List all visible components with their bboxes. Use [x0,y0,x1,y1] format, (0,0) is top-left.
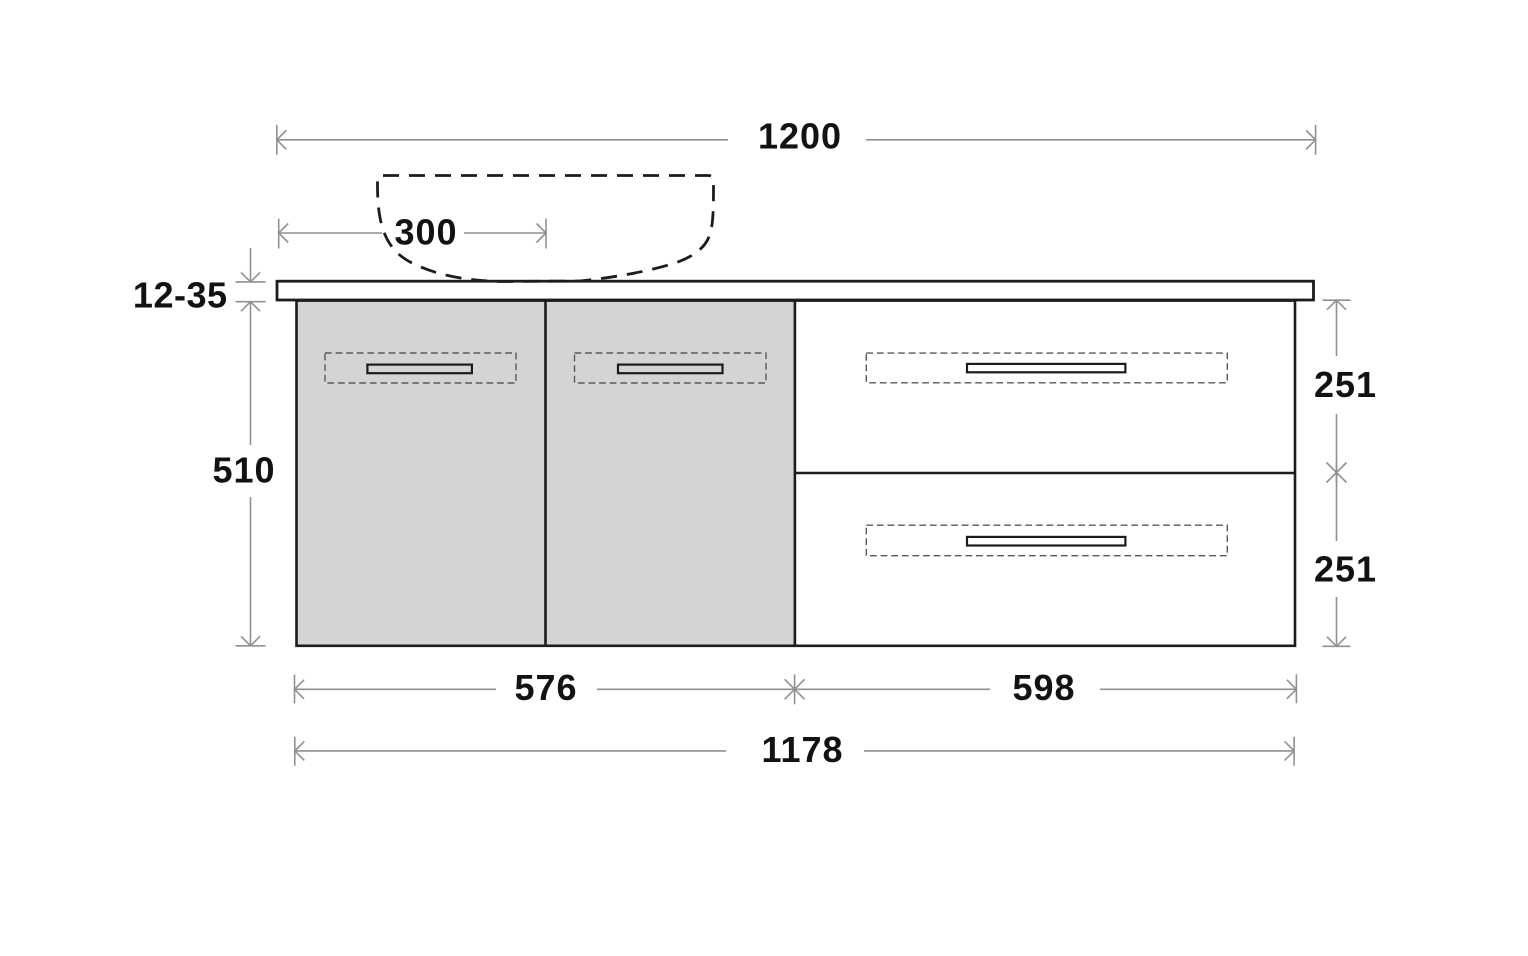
svg-text:1200: 1200 [758,116,842,157]
svg-text:1178: 1178 [761,729,843,770]
svg-text:251: 251 [1314,549,1377,590]
svg-text:598: 598 [1012,667,1075,708]
svg-text:12-35: 12-35 [133,275,228,316]
svg-text:510: 510 [212,450,275,491]
svg-text:576: 576 [514,667,577,708]
svg-text:300: 300 [394,212,457,253]
svg-text:251: 251 [1314,364,1377,405]
